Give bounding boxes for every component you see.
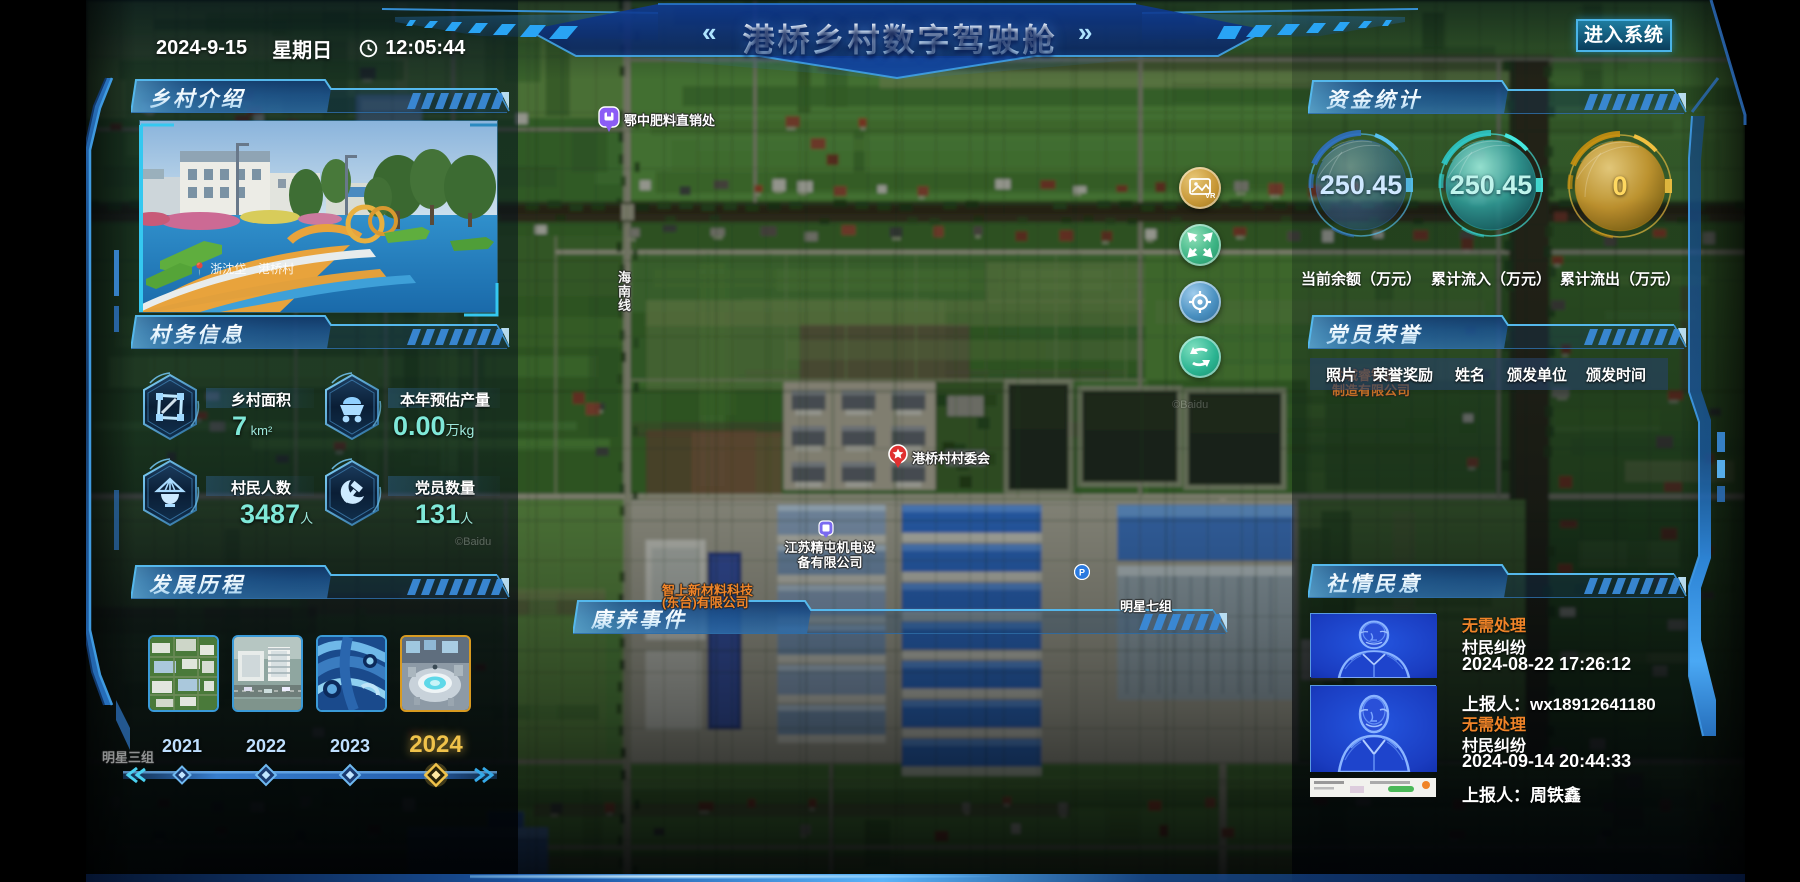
svg-text:社情民意: 社情民意	[1326, 572, 1422, 596]
svg-text:乡村介绍: 乡村介绍	[149, 87, 246, 111]
svg-text:发展历程: 发展历程	[149, 573, 245, 597]
svg-text:康养事件: 康养事件	[590, 608, 687, 632]
svg-text:党员荣誉: 党员荣誉	[1326, 323, 1422, 347]
svg-text:资金统计: 资金统计	[1326, 88, 1422, 112]
svg-text:P: P	[1079, 568, 1085, 578]
svg-text:村务信息: 村务信息	[149, 323, 245, 347]
svg-text:VR: VR	[1205, 191, 1216, 200]
